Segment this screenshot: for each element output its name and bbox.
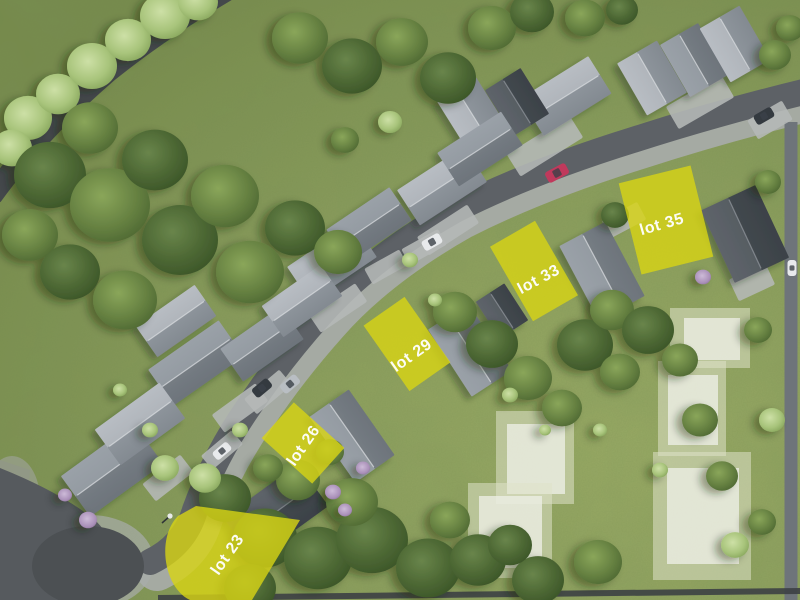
tree [151, 455, 179, 481]
tree [232, 423, 248, 438]
site-plan-canvas: lot 23 lot 26 lot 29 lot 33 lot 35 [0, 0, 800, 600]
tree [272, 12, 328, 64]
tree [744, 317, 772, 343]
tree [253, 454, 283, 482]
tree [122, 130, 188, 191]
tree [755, 170, 781, 194]
tree [430, 502, 470, 539]
flower-bush [356, 462, 370, 475]
tree [40, 244, 100, 299]
tree [378, 111, 402, 133]
site-plan-image: lot 23 lot 26 lot 29 lot 33 lot 35 [0, 0, 800, 600]
tree [565, 0, 605, 36]
tree [721, 532, 749, 558]
tree [466, 320, 518, 368]
flower-bush [695, 270, 711, 285]
tree [402, 253, 418, 268]
tree [142, 423, 158, 438]
car-white [788, 260, 797, 276]
tree [759, 40, 791, 69]
tree [600, 354, 640, 391]
tree [428, 294, 442, 307]
tree [542, 390, 582, 427]
tree [376, 18, 428, 66]
tree [706, 461, 738, 490]
tree [191, 165, 259, 228]
tree [216, 241, 284, 304]
tree [662, 343, 698, 376]
tree [113, 384, 127, 397]
flower-bush [58, 489, 72, 502]
tree [652, 463, 668, 478]
tree [502, 388, 518, 403]
tree [331, 127, 359, 153]
flower-bush [338, 504, 352, 517]
flower-bush [79, 512, 97, 529]
tree [189, 463, 221, 492]
tree [488, 525, 532, 565]
tree [322, 38, 382, 93]
tree [396, 539, 460, 598]
tree [759, 408, 785, 432]
tree [420, 52, 476, 104]
flower-bush [325, 485, 341, 500]
tree [62, 102, 118, 154]
tree [93, 271, 157, 330]
tree [574, 540, 622, 584]
tree [593, 424, 607, 437]
tree [468, 6, 516, 50]
tree [748, 509, 776, 535]
tree [622, 306, 674, 354]
tree [314, 230, 362, 274]
tree [682, 403, 718, 436]
tree [539, 424, 551, 435]
